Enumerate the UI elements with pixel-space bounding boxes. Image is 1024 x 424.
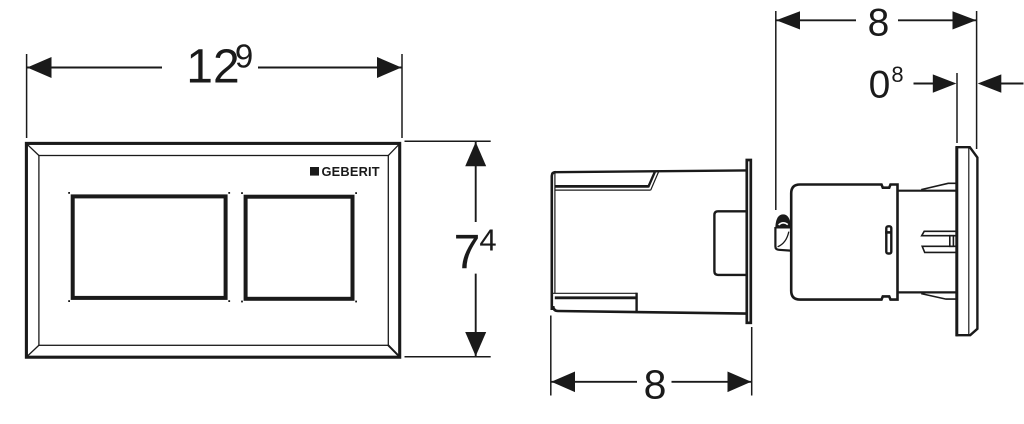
svg-text:7: 7 [454, 226, 481, 279]
svg-text:9: 9 [235, 37, 253, 74]
svg-text:8: 8 [891, 62, 903, 87]
svg-text:8: 8 [644, 361, 667, 407]
svg-text:0: 0 [869, 64, 891, 107]
svg-text:GEBERIT: GEBERIT [322, 164, 380, 179]
svg-text:4: 4 [479, 223, 496, 258]
svg-text:8: 8 [868, 1, 890, 44]
svg-text:12: 12 [186, 41, 239, 94]
